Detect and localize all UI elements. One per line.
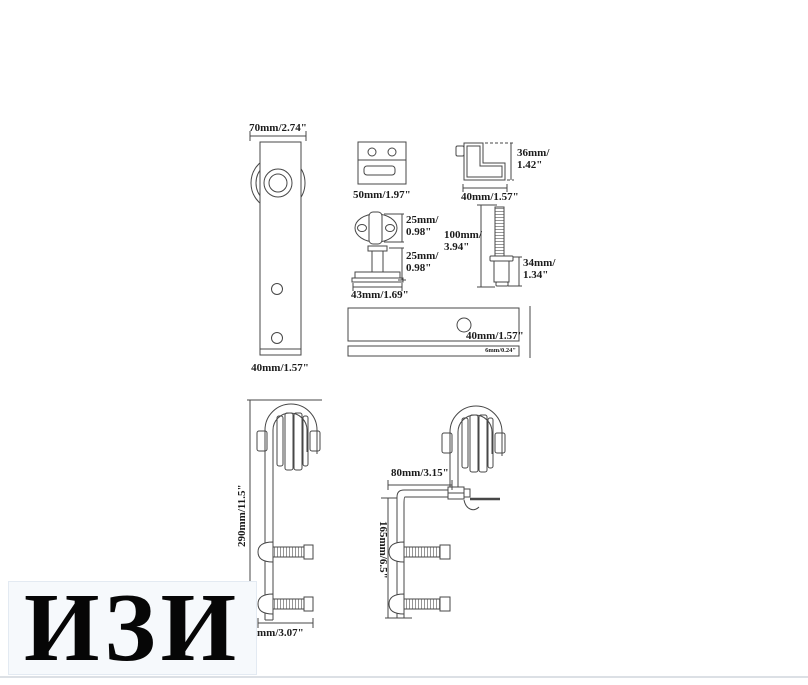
- dim-bracket-width: 50mm/1.97": [353, 189, 411, 201]
- dim-stop-base-width: 43mm/1.69": [351, 289, 409, 301]
- product-dimension-diagram: 70mm/2.74" 40mm/1.57" 50mm/1.97" 36mm/ 1…: [0, 0, 808, 685]
- l-bracket-side-view: [456, 143, 514, 192]
- dim-lbracket-height: 36mm/ 1.42": [517, 147, 553, 171]
- hanger-strap-front-view: [250, 131, 306, 355]
- image-bottom-edge: [0, 676, 808, 678]
- door-stop-top-view: [355, 212, 404, 244]
- dim-stop-top-width: 25mm/ 0.98": [406, 214, 442, 238]
- assembly-side-view-offset: [381, 406, 505, 618]
- dim-hanger-strap-width: 40mm/1.57": [251, 362, 309, 374]
- dim-assembly-straight-height: 290mm/11.5": [236, 484, 248, 547]
- assembly-side-view-straight: [247, 400, 322, 628]
- dim-rail-hole-spacing: 40mm/1.57": [466, 330, 524, 342]
- watermark-box: ИЗИ: [8, 581, 257, 675]
- dim-stop-side-height: 25mm/ 0.98": [406, 250, 442, 274]
- dim-assembly-offset-height: 165mm/6.5": [377, 521, 389, 579]
- dim-assembly-offset-offset: 80mm/3.15": [391, 467, 449, 479]
- dim-hanger-wheel-width: 70mm/2.74": [249, 122, 307, 134]
- dim-rail-thickness: 6mm/0.24": [468, 347, 516, 355]
- mounting-bracket-front-view: [358, 142, 406, 184]
- dim-spacer-height: 34mm/ 1.34": [523, 257, 559, 281]
- watermark-text: ИЗИ: [24, 585, 241, 671]
- dim-bolt-length: 100mm/ 3.94": [444, 229, 484, 253]
- door-stop-side-view: [352, 246, 406, 291]
- dim-lbracket-width: 40mm/1.57": [461, 191, 519, 203]
